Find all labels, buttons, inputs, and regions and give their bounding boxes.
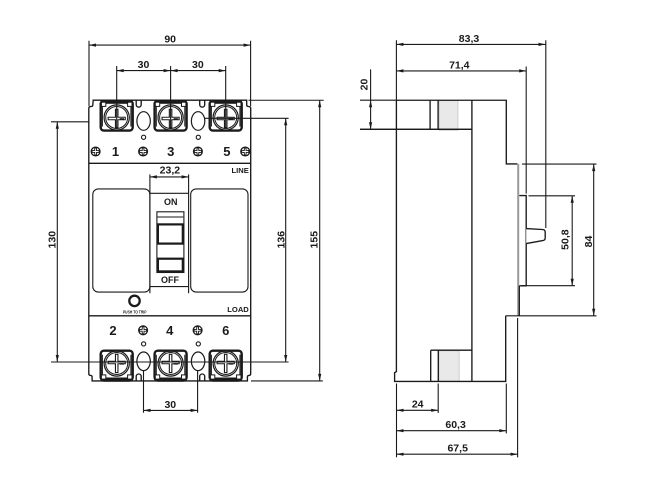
svg-text:OFF: OFF <box>161 275 179 285</box>
svg-text:LOAD: LOAD <box>227 305 249 314</box>
svg-text:1: 1 <box>112 144 119 159</box>
svg-text:2: 2 <box>109 323 116 338</box>
svg-text:71,4: 71,4 <box>449 59 470 71</box>
svg-text:30: 30 <box>138 59 150 71</box>
svg-text:60,3: 60,3 <box>445 419 466 431</box>
svg-text:155: 155 <box>309 231 321 249</box>
svg-text:20: 20 <box>358 79 370 91</box>
svg-text:6: 6 <box>222 323 229 338</box>
svg-text:130: 130 <box>46 231 58 249</box>
svg-text:83,3: 83,3 <box>459 33 480 45</box>
svg-text:ON: ON <box>164 197 178 207</box>
svg-text:23,2: 23,2 <box>160 164 181 176</box>
svg-text:3: 3 <box>167 144 174 159</box>
svg-text:24: 24 <box>412 399 424 411</box>
svg-text:136: 136 <box>275 231 287 249</box>
svg-text:84: 84 <box>583 236 595 248</box>
svg-text:30: 30 <box>192 59 204 71</box>
svg-text:50,8: 50,8 <box>559 229 571 250</box>
svg-text:30: 30 <box>164 399 176 411</box>
svg-text:PUSH TO TRIP: PUSH TO TRIP <box>123 310 147 315</box>
svg-text:LINE: LINE <box>231 166 248 175</box>
svg-text:5: 5 <box>223 144 230 159</box>
svg-text:4: 4 <box>166 323 174 338</box>
svg-text:67,5: 67,5 <box>447 442 468 454</box>
svg-text:90: 90 <box>164 34 176 46</box>
